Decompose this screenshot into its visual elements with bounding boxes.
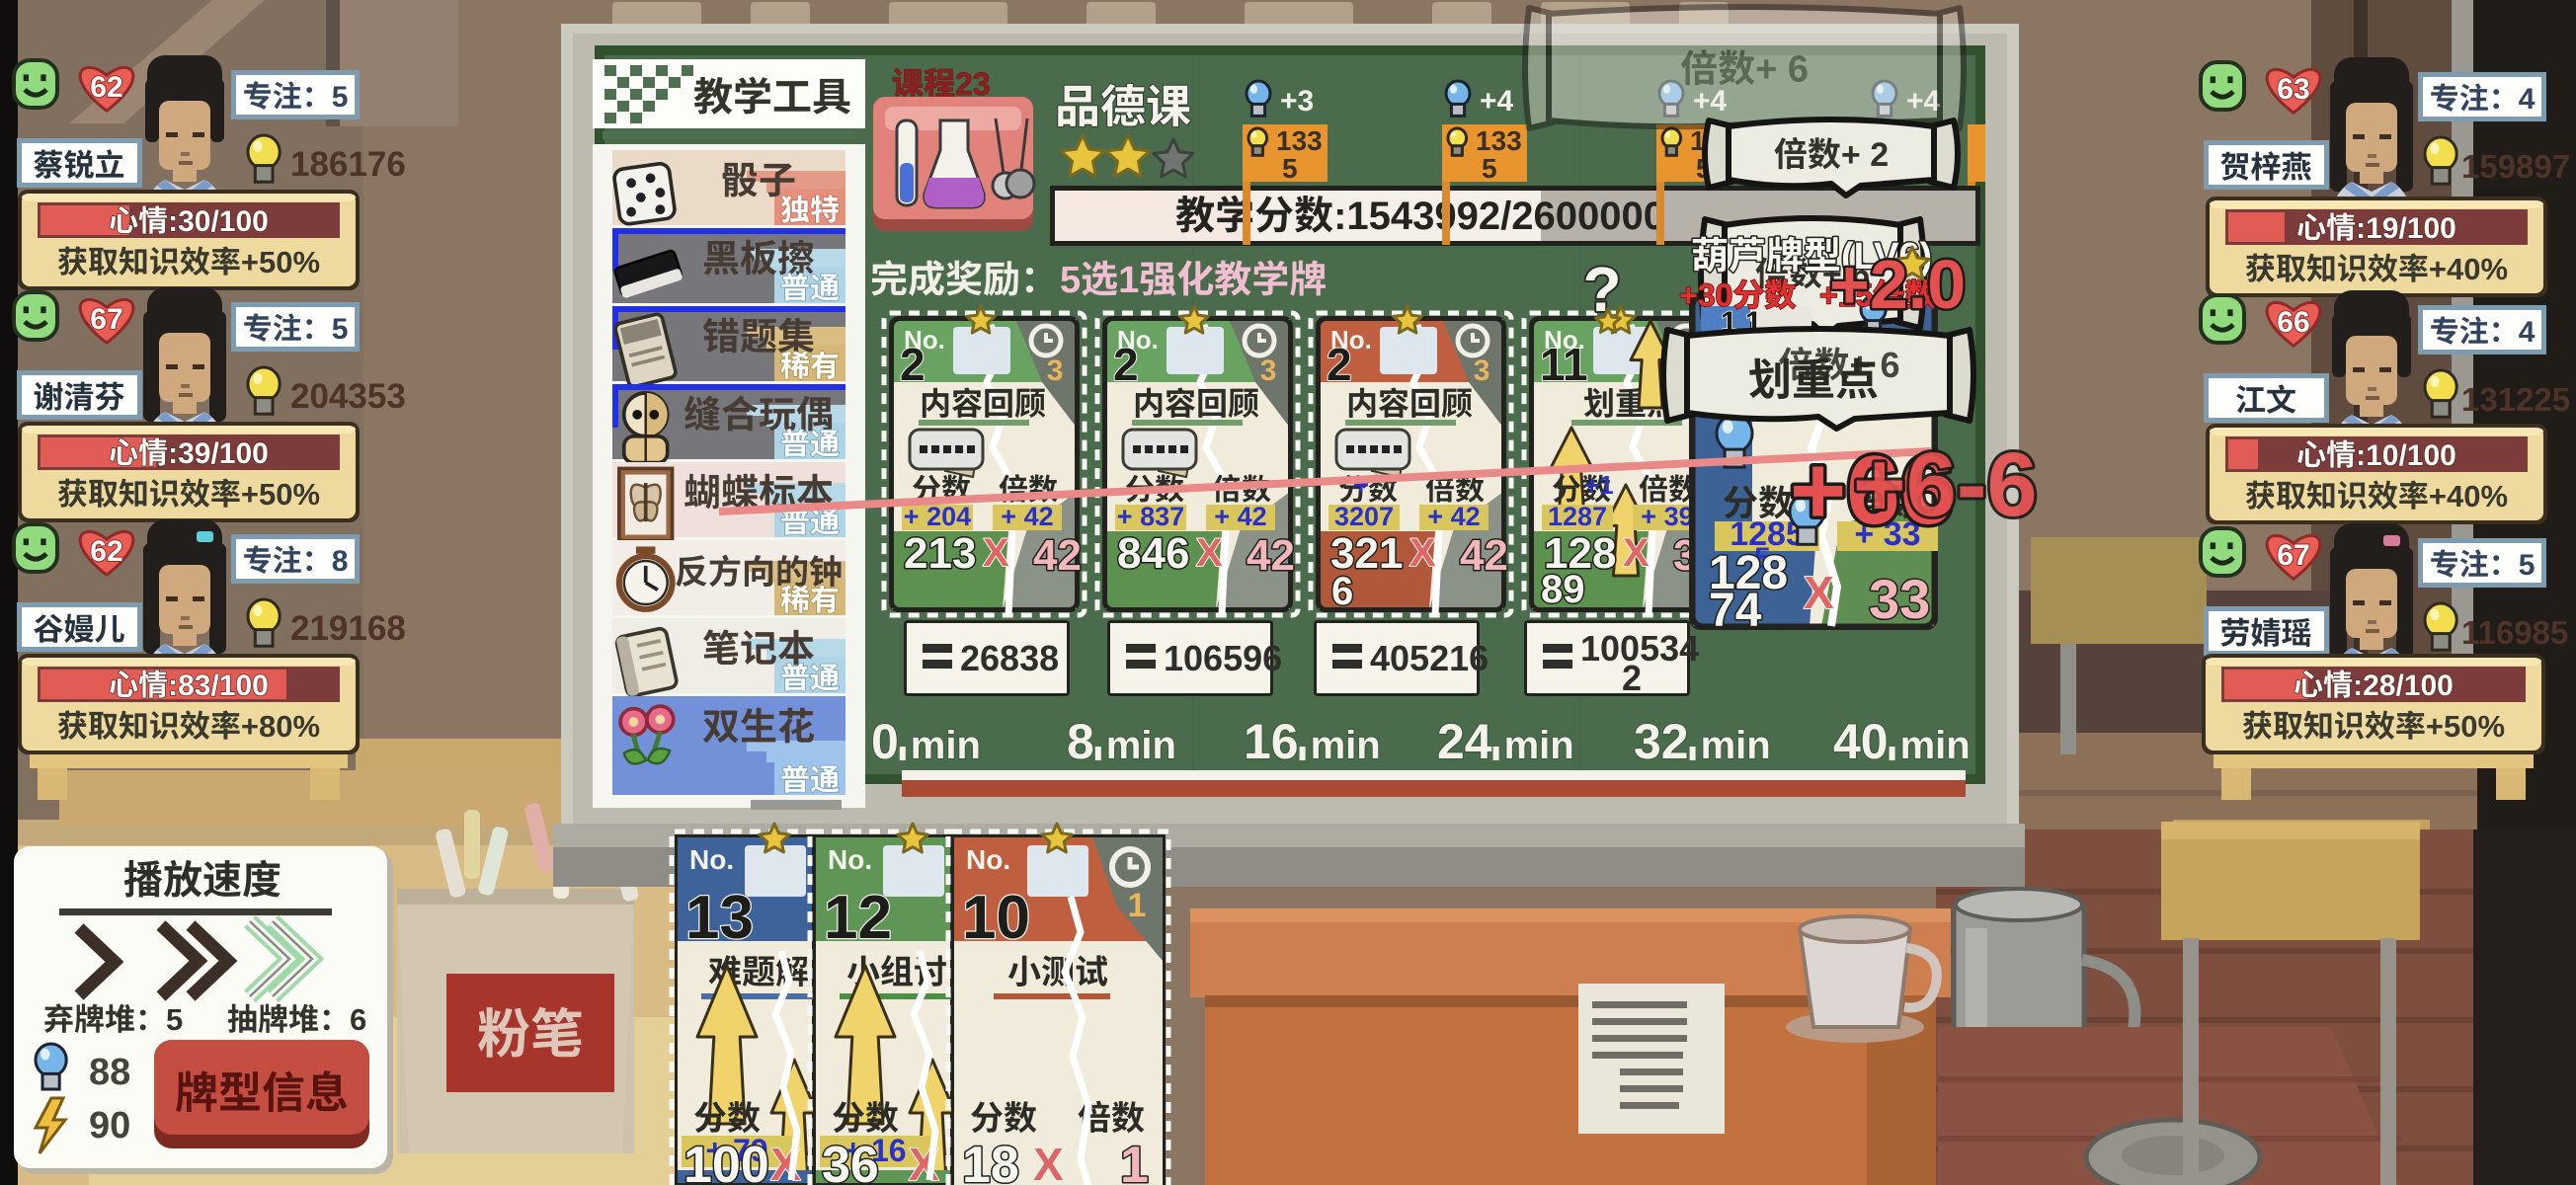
svg-text:5: 5 xyxy=(1060,260,1081,301)
svg-text:63: 63 xyxy=(2277,73,2309,106)
svg-text:3: 3 xyxy=(1260,355,1277,387)
svg-text:+40%: +40% xyxy=(2429,252,2508,286)
svg-text:26838: 26838 xyxy=(960,638,1059,678)
svg-text:10: 10 xyxy=(962,884,1030,952)
svg-text:4: 4 xyxy=(2519,83,2536,116)
svg-text:+ 42: + 42 xyxy=(1001,502,1053,531)
svg-text::83/100: :83/100 xyxy=(168,670,269,702)
svg-text:X: X xyxy=(1033,1139,1064,1185)
svg-text:1: 1 xyxy=(1118,260,1139,301)
svg-text:+4: +4 xyxy=(1480,85,1514,118)
svg-text:2: 2 xyxy=(1113,339,1139,390)
svg-text:+ 6: + 6 xyxy=(1850,345,1900,385)
svg-text:+1: +1 xyxy=(1584,470,1614,500)
svg-text:+50%: +50% xyxy=(241,245,320,279)
svg-text:5: 5 xyxy=(1282,153,1298,184)
svg-text:213: 213 xyxy=(904,529,976,578)
svg-text:1: 1 xyxy=(1128,887,1147,924)
svg-text:?: ? xyxy=(1583,254,1622,325)
svg-text:min: min xyxy=(1701,724,1771,767)
svg-text:+50%: +50% xyxy=(2426,709,2505,744)
svg-text::28/100: :28/100 xyxy=(2353,670,2454,702)
svg-text:88: 88 xyxy=(89,1052,130,1093)
svg-text:min: min xyxy=(1900,724,1971,767)
svg-text:3: 3 xyxy=(1474,355,1490,387)
svg-text::39/100: :39/100 xyxy=(168,437,269,470)
svg-text:X: X xyxy=(983,531,1009,575)
svg-text:+: + xyxy=(1353,469,1369,500)
svg-text:74: 74 xyxy=(1709,585,1762,637)
svg-text:+ 2: + 2 xyxy=(1841,136,1889,174)
svg-text:12: 12 xyxy=(824,884,892,952)
svg-text:846: 846 xyxy=(1117,529,1189,578)
svg-text:131225: 131225 xyxy=(2461,381,2570,418)
svg-text:min: min xyxy=(1504,724,1574,767)
svg-text:219168: 219168 xyxy=(290,609,406,648)
svg-text:4: 4 xyxy=(2519,316,2536,349)
svg-text:42: 42 xyxy=(1247,531,1295,580)
svg-text:6: 6 xyxy=(1331,570,1353,613)
svg-text:90: 90 xyxy=(89,1105,130,1146)
svg-text:X: X xyxy=(1409,531,1436,575)
svg-text:13: 13 xyxy=(685,884,754,952)
svg-text:min: min xyxy=(1106,724,1176,767)
svg-text:36: 36 xyxy=(822,1137,879,1185)
svg-text::19/100: :19/100 xyxy=(2356,212,2456,245)
svg-text:X: X xyxy=(1623,531,1650,575)
svg-text:2: 2 xyxy=(1327,339,1352,390)
svg-text:5: 5 xyxy=(1482,153,1497,184)
svg-text:X: X xyxy=(1804,567,1834,618)
svg-text:405216: 405216 xyxy=(1370,638,1489,678)
svg-text:100: 100 xyxy=(684,1137,769,1185)
svg-text:2: 2 xyxy=(1622,658,1642,698)
svg-text:66: 66 xyxy=(2277,306,2309,339)
svg-text:2: 2 xyxy=(900,339,926,390)
svg-text::1543992/2600000: :1543992/2600000 xyxy=(1333,195,1665,238)
svg-text:X: X xyxy=(1196,531,1223,575)
svg-text:+40%: +40% xyxy=(2429,479,2508,513)
svg-text:5: 5 xyxy=(166,1002,183,1037)
svg-text::30/100: :30/100 xyxy=(168,205,269,238)
svg-text:23: 23 xyxy=(955,66,991,102)
svg-text:133: 133 xyxy=(1276,125,1323,156)
svg-text:+30: +30 xyxy=(1679,277,1732,313)
svg-text:106596: 106596 xyxy=(1164,638,1282,678)
svg-text:11: 11 xyxy=(1540,339,1588,390)
svg-text:+50%: +50% xyxy=(241,477,320,512)
svg-text:89: 89 xyxy=(1541,568,1585,611)
svg-text:+6-6: +6-6 xyxy=(1853,434,2038,535)
svg-text:5: 5 xyxy=(332,81,349,114)
svg-text:+ 42: + 42 xyxy=(1427,502,1480,531)
svg-text:5: 5 xyxy=(332,313,349,346)
svg-text::10/100: :10/100 xyxy=(2356,439,2456,472)
svg-text:16: 16 xyxy=(1244,714,1299,769)
svg-text:3: 3 xyxy=(1047,355,1064,387)
svg-text:+3: +3 xyxy=(1280,85,1314,118)
svg-text:0: 0 xyxy=(871,714,899,769)
svg-text:67: 67 xyxy=(90,303,122,336)
svg-text:42: 42 xyxy=(1460,531,1508,580)
svg-text:min: min xyxy=(1311,724,1381,767)
svg-text:+80%: +80% xyxy=(241,709,320,744)
svg-text:6: 6 xyxy=(350,1002,366,1037)
svg-text:No.: No. xyxy=(689,844,734,875)
svg-text:18: 18 xyxy=(962,1137,1019,1185)
svg-text:24: 24 xyxy=(1437,714,1492,769)
svg-text:+ 42: + 42 xyxy=(1214,502,1266,531)
svg-text:No.: No. xyxy=(828,844,872,875)
svg-text:+ 39: + 39 xyxy=(1641,502,1693,531)
svg-text:No.: No. xyxy=(966,844,1010,875)
svg-text:8: 8 xyxy=(1067,714,1094,769)
svg-text:133: 133 xyxy=(1476,125,1522,156)
svg-text:67: 67 xyxy=(2277,539,2309,572)
svg-text:42: 42 xyxy=(1033,531,1082,580)
svg-text:204353: 204353 xyxy=(290,377,406,416)
svg-text:62: 62 xyxy=(90,535,122,568)
svg-text:5: 5 xyxy=(2519,549,2536,582)
svg-text:32: 32 xyxy=(1634,714,1689,769)
svg-text:8: 8 xyxy=(332,545,349,578)
svg-text:+ 6: + 6 xyxy=(1755,49,1809,91)
svg-text:+ 204: + 204 xyxy=(904,502,971,531)
svg-text:159897: 159897 xyxy=(2461,148,2570,185)
svg-text:40: 40 xyxy=(1833,714,1889,769)
svg-text:1: 1 xyxy=(1120,1137,1149,1185)
svg-text:+ 837: + 837 xyxy=(1117,502,1184,531)
svg-text:33: 33 xyxy=(1869,568,1930,630)
svg-text:62: 62 xyxy=(90,71,122,104)
svg-text:1287: 1287 xyxy=(1548,502,1607,531)
svg-text:186176: 186176 xyxy=(290,145,406,184)
svg-text:116985: 116985 xyxy=(2461,614,2568,651)
svg-text:min: min xyxy=(911,724,981,767)
svg-text:+2.0: +2.0 xyxy=(1829,246,1966,323)
svg-text:3207: 3207 xyxy=(1334,502,1394,531)
